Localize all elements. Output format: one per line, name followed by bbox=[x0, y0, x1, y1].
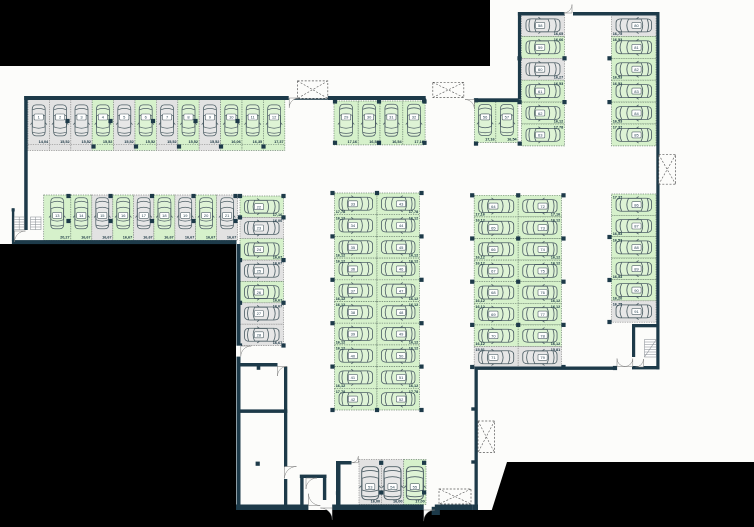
svg-text:16,12: 16,12 bbox=[551, 219, 561, 223]
svg-text:71: 71 bbox=[491, 355, 496, 360]
svg-text:17,16: 17,16 bbox=[485, 138, 495, 142]
svg-text:85: 85 bbox=[634, 133, 639, 138]
svg-text:16,12: 16,12 bbox=[554, 120, 564, 124]
svg-text:31: 31 bbox=[389, 115, 394, 120]
svg-text:16,67: 16,67 bbox=[273, 262, 283, 266]
svg-text:70: 70 bbox=[491, 333, 496, 338]
svg-text:16,53: 16,53 bbox=[613, 232, 623, 236]
svg-text:16,12: 16,12 bbox=[336, 297, 346, 301]
svg-text:83: 83 bbox=[634, 89, 639, 94]
svg-text:60: 60 bbox=[538, 67, 543, 72]
svg-text:19: 19 bbox=[183, 213, 188, 218]
svg-text:16,67: 16,67 bbox=[185, 236, 195, 240]
svg-text:16,12: 16,12 bbox=[475, 342, 485, 346]
svg-text:16,12: 16,12 bbox=[409, 384, 419, 388]
svg-text:24: 24 bbox=[257, 247, 262, 252]
svg-text:38: 38 bbox=[351, 310, 356, 315]
svg-text:16,75: 16,75 bbox=[613, 302, 623, 306]
svg-text:15,52: 15,52 bbox=[103, 140, 113, 144]
svg-text:16,54: 16,54 bbox=[392, 140, 402, 144]
svg-text:27: 27 bbox=[257, 311, 262, 316]
svg-text:15: 15 bbox=[100, 213, 105, 218]
svg-text:41: 41 bbox=[351, 375, 356, 380]
svg-text:16,12: 16,12 bbox=[336, 254, 346, 258]
svg-text:51: 51 bbox=[399, 375, 404, 380]
svg-text:34: 34 bbox=[351, 223, 356, 228]
svg-text:16,53: 16,53 bbox=[613, 82, 623, 86]
svg-text:16,12: 16,12 bbox=[336, 260, 346, 264]
svg-text:16,12: 16,12 bbox=[409, 297, 419, 301]
svg-text:17,16: 17,16 bbox=[551, 212, 561, 216]
svg-text:63: 63 bbox=[538, 133, 543, 138]
svg-text:58: 58 bbox=[538, 23, 543, 28]
svg-text:16,20: 16,20 bbox=[613, 296, 623, 300]
svg-text:17,16: 17,16 bbox=[475, 212, 485, 216]
svg-text:17,16: 17,16 bbox=[273, 213, 283, 217]
svg-text:16,12: 16,12 bbox=[551, 299, 561, 303]
svg-text:16,53: 16,53 bbox=[554, 82, 564, 86]
svg-text:89: 89 bbox=[634, 266, 639, 271]
svg-text:16,12: 16,12 bbox=[475, 262, 485, 266]
svg-text:16,54: 16,54 bbox=[507, 138, 517, 142]
svg-text:16,67: 16,67 bbox=[273, 341, 283, 345]
svg-text:68: 68 bbox=[491, 290, 496, 295]
svg-text:87: 87 bbox=[634, 224, 639, 229]
svg-text:17,78: 17,78 bbox=[409, 210, 419, 214]
svg-text:16,67: 16,67 bbox=[273, 304, 283, 308]
svg-text:16,12: 16,12 bbox=[551, 256, 561, 260]
svg-text:33: 33 bbox=[351, 202, 356, 207]
svg-text:16,00: 16,00 bbox=[273, 219, 283, 223]
svg-text:75: 75 bbox=[540, 269, 545, 274]
svg-text:10: 10 bbox=[229, 115, 234, 120]
svg-text:16,00: 16,00 bbox=[371, 500, 381, 504]
svg-text:15,52: 15,52 bbox=[210, 140, 220, 144]
svg-text:15,81: 15,81 bbox=[475, 348, 485, 352]
svg-text:77: 77 bbox=[540, 312, 545, 317]
svg-text:47: 47 bbox=[399, 288, 404, 293]
svg-text:16,67: 16,67 bbox=[227, 236, 237, 240]
svg-text:17: 17 bbox=[141, 213, 146, 218]
svg-text:67: 67 bbox=[491, 269, 496, 274]
svg-text:39: 39 bbox=[351, 332, 356, 337]
svg-text:16,67: 16,67 bbox=[123, 236, 133, 240]
svg-text:14,04: 14,04 bbox=[39, 140, 49, 144]
svg-text:28: 28 bbox=[257, 333, 262, 338]
svg-text:13: 13 bbox=[55, 213, 60, 218]
svg-text:16,67: 16,67 bbox=[102, 236, 112, 240]
svg-text:16,27: 16,27 bbox=[554, 76, 564, 80]
svg-text:16,65: 16,65 bbox=[554, 32, 564, 36]
svg-text:16,53: 16,53 bbox=[613, 38, 623, 42]
svg-text:23: 23 bbox=[257, 226, 262, 231]
svg-text:43: 43 bbox=[399, 202, 404, 207]
svg-text:62: 62 bbox=[538, 111, 543, 116]
svg-text:17,37: 17,37 bbox=[274, 140, 284, 144]
svg-text:16,35: 16,35 bbox=[253, 140, 263, 144]
svg-text:16,12: 16,12 bbox=[336, 384, 346, 388]
svg-text:20: 20 bbox=[204, 213, 209, 218]
svg-text:16,12: 16,12 bbox=[475, 256, 485, 260]
svg-text:16: 16 bbox=[121, 213, 126, 218]
svg-text:74: 74 bbox=[540, 247, 545, 252]
svg-text:44: 44 bbox=[399, 223, 404, 228]
svg-text:32: 32 bbox=[412, 115, 417, 120]
svg-text:21: 21 bbox=[225, 213, 230, 218]
svg-text:76: 76 bbox=[540, 290, 545, 295]
svg-text:69: 69 bbox=[491, 312, 496, 317]
svg-text:16,75: 16,75 bbox=[613, 32, 623, 36]
svg-text:16,12: 16,12 bbox=[336, 347, 346, 351]
svg-text:72: 72 bbox=[540, 204, 545, 209]
svg-text:50: 50 bbox=[399, 353, 404, 358]
svg-text:16,12: 16,12 bbox=[409, 216, 419, 220]
svg-text:45: 45 bbox=[399, 245, 404, 250]
svg-text:16,66: 16,66 bbox=[554, 38, 564, 42]
svg-text:16,67: 16,67 bbox=[273, 256, 283, 260]
svg-text:26: 26 bbox=[257, 290, 262, 295]
svg-text:78: 78 bbox=[540, 333, 545, 338]
svg-text:84: 84 bbox=[634, 111, 639, 116]
svg-text:17,78: 17,78 bbox=[554, 126, 564, 130]
svg-text:16,12: 16,12 bbox=[336, 216, 346, 220]
svg-text:16,12: 16,12 bbox=[409, 260, 419, 264]
svg-text:73: 73 bbox=[540, 225, 545, 230]
svg-text:16,12: 16,12 bbox=[409, 340, 419, 344]
svg-text:59: 59 bbox=[538, 45, 543, 50]
svg-text:82: 82 bbox=[634, 67, 639, 72]
svg-text:16,53: 16,53 bbox=[613, 275, 623, 279]
svg-text:15,52: 15,52 bbox=[81, 140, 91, 144]
svg-text:16,12: 16,12 bbox=[475, 299, 485, 303]
svg-text:81: 81 bbox=[634, 45, 639, 50]
svg-text:16,12: 16,12 bbox=[551, 305, 561, 309]
svg-text:65: 65 bbox=[491, 225, 496, 230]
svg-text:42: 42 bbox=[351, 397, 356, 402]
svg-text:15,52: 15,52 bbox=[167, 140, 177, 144]
svg-text:20,27: 20,27 bbox=[60, 236, 70, 240]
svg-text:16,12: 16,12 bbox=[409, 303, 419, 307]
svg-text:12: 12 bbox=[272, 115, 277, 120]
svg-text:88: 88 bbox=[634, 245, 639, 250]
svg-text:37: 37 bbox=[351, 288, 356, 293]
svg-text:35: 35 bbox=[351, 245, 356, 250]
svg-text:15,81: 15,81 bbox=[551, 348, 561, 352]
svg-text:40: 40 bbox=[351, 353, 356, 358]
svg-text:56: 56 bbox=[483, 115, 488, 120]
svg-text:17,00: 17,00 bbox=[415, 500, 425, 504]
svg-text:15,52: 15,52 bbox=[146, 140, 156, 144]
svg-text:15,52: 15,52 bbox=[188, 140, 198, 144]
svg-text:36: 36 bbox=[351, 267, 356, 272]
svg-text:16,12: 16,12 bbox=[551, 262, 561, 266]
svg-text:25: 25 bbox=[257, 269, 262, 274]
svg-text:18: 18 bbox=[162, 213, 167, 218]
svg-text:64: 64 bbox=[491, 204, 496, 209]
svg-text:16,00: 16,00 bbox=[393, 500, 403, 504]
svg-text:16,53: 16,53 bbox=[613, 238, 623, 242]
svg-text:61: 61 bbox=[538, 89, 543, 94]
svg-text:57: 57 bbox=[505, 115, 510, 120]
svg-text:16,12: 16,12 bbox=[336, 340, 346, 344]
svg-text:48: 48 bbox=[399, 310, 404, 315]
svg-text:16,67: 16,67 bbox=[273, 298, 283, 302]
svg-text:22: 22 bbox=[257, 204, 262, 209]
svg-text:90: 90 bbox=[634, 288, 639, 293]
svg-text:17,16: 17,16 bbox=[347, 140, 357, 144]
svg-text:53: 53 bbox=[368, 484, 373, 489]
svg-text:17,37: 17,37 bbox=[613, 126, 623, 130]
svg-text:15,52: 15,52 bbox=[124, 140, 134, 144]
svg-text:17,78: 17,78 bbox=[336, 210, 346, 214]
svg-text:52: 52 bbox=[399, 397, 404, 402]
svg-text:16,12: 16,12 bbox=[409, 254, 419, 258]
svg-text:30: 30 bbox=[367, 115, 372, 120]
svg-text:16,67: 16,67 bbox=[143, 236, 153, 240]
svg-text:16,53: 16,53 bbox=[613, 76, 623, 80]
svg-text:46: 46 bbox=[399, 267, 404, 272]
svg-text:55: 55 bbox=[413, 484, 418, 489]
svg-text:16,12: 16,12 bbox=[475, 219, 485, 223]
svg-text:16,12: 16,12 bbox=[475, 305, 485, 309]
svg-text:66: 66 bbox=[491, 247, 496, 252]
svg-text:49: 49 bbox=[399, 332, 404, 337]
svg-text:79: 79 bbox=[540, 355, 545, 360]
svg-text:91: 91 bbox=[634, 309, 639, 314]
svg-text:16,12: 16,12 bbox=[409, 347, 419, 351]
svg-text:16,53: 16,53 bbox=[613, 120, 623, 124]
svg-text:29: 29 bbox=[344, 115, 349, 120]
svg-text:16,67: 16,67 bbox=[81, 236, 91, 240]
svg-text:17,37: 17,37 bbox=[613, 196, 623, 200]
svg-text:16,06: 16,06 bbox=[231, 140, 241, 144]
svg-text:14: 14 bbox=[79, 213, 84, 218]
svg-text:17,78: 17,78 bbox=[409, 390, 419, 394]
svg-text:86: 86 bbox=[634, 202, 639, 207]
svg-text:54: 54 bbox=[390, 484, 395, 489]
svg-text:15,52: 15,52 bbox=[60, 140, 70, 144]
svg-text:16,12: 16,12 bbox=[336, 303, 346, 307]
svg-text:17,78: 17,78 bbox=[336, 390, 346, 394]
svg-text:16,67: 16,67 bbox=[164, 236, 174, 240]
svg-text:80: 80 bbox=[634, 23, 639, 28]
svg-text:16,12: 16,12 bbox=[551, 342, 561, 346]
svg-text:16,67: 16,67 bbox=[206, 236, 216, 240]
